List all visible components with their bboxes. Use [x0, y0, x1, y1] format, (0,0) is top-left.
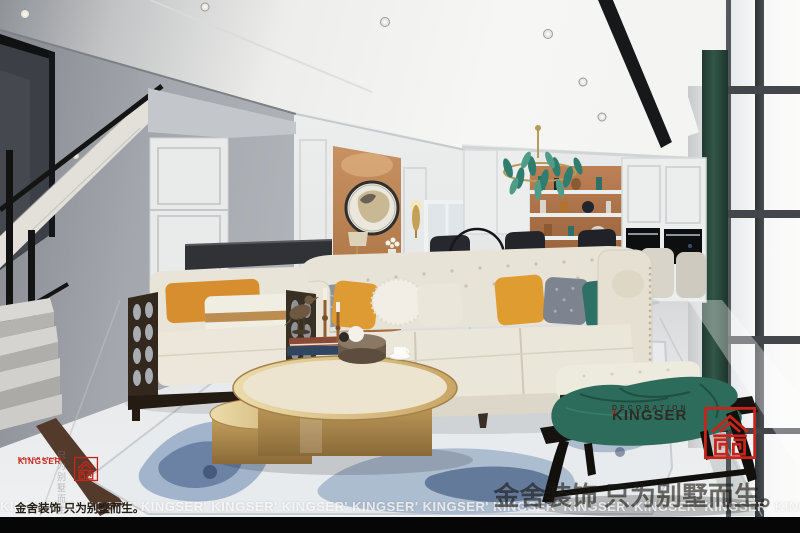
- slogan-left: 金舍装饰 只为别墅而生。: [15, 500, 144, 516]
- wall-sconce: [410, 200, 422, 238]
- slogan-large: 金舍装饰 只为别墅而生。: [493, 476, 786, 513]
- table-lamp: [348, 232, 368, 246]
- brand-subtext: DECORATION: [612, 405, 689, 412]
- living-room-photo: KINGSER' KINGSER' KINGSER' KINGSER' KING…: [0, 0, 800, 533]
- round-artwork: [346, 182, 398, 234]
- dining-chair-light: [676, 252, 706, 298]
- panel-glow: [341, 153, 393, 177]
- stair-steps: [0, 298, 62, 430]
- lattice-panel-left: [128, 292, 158, 404]
- bottom-black-bar: [0, 517, 800, 533]
